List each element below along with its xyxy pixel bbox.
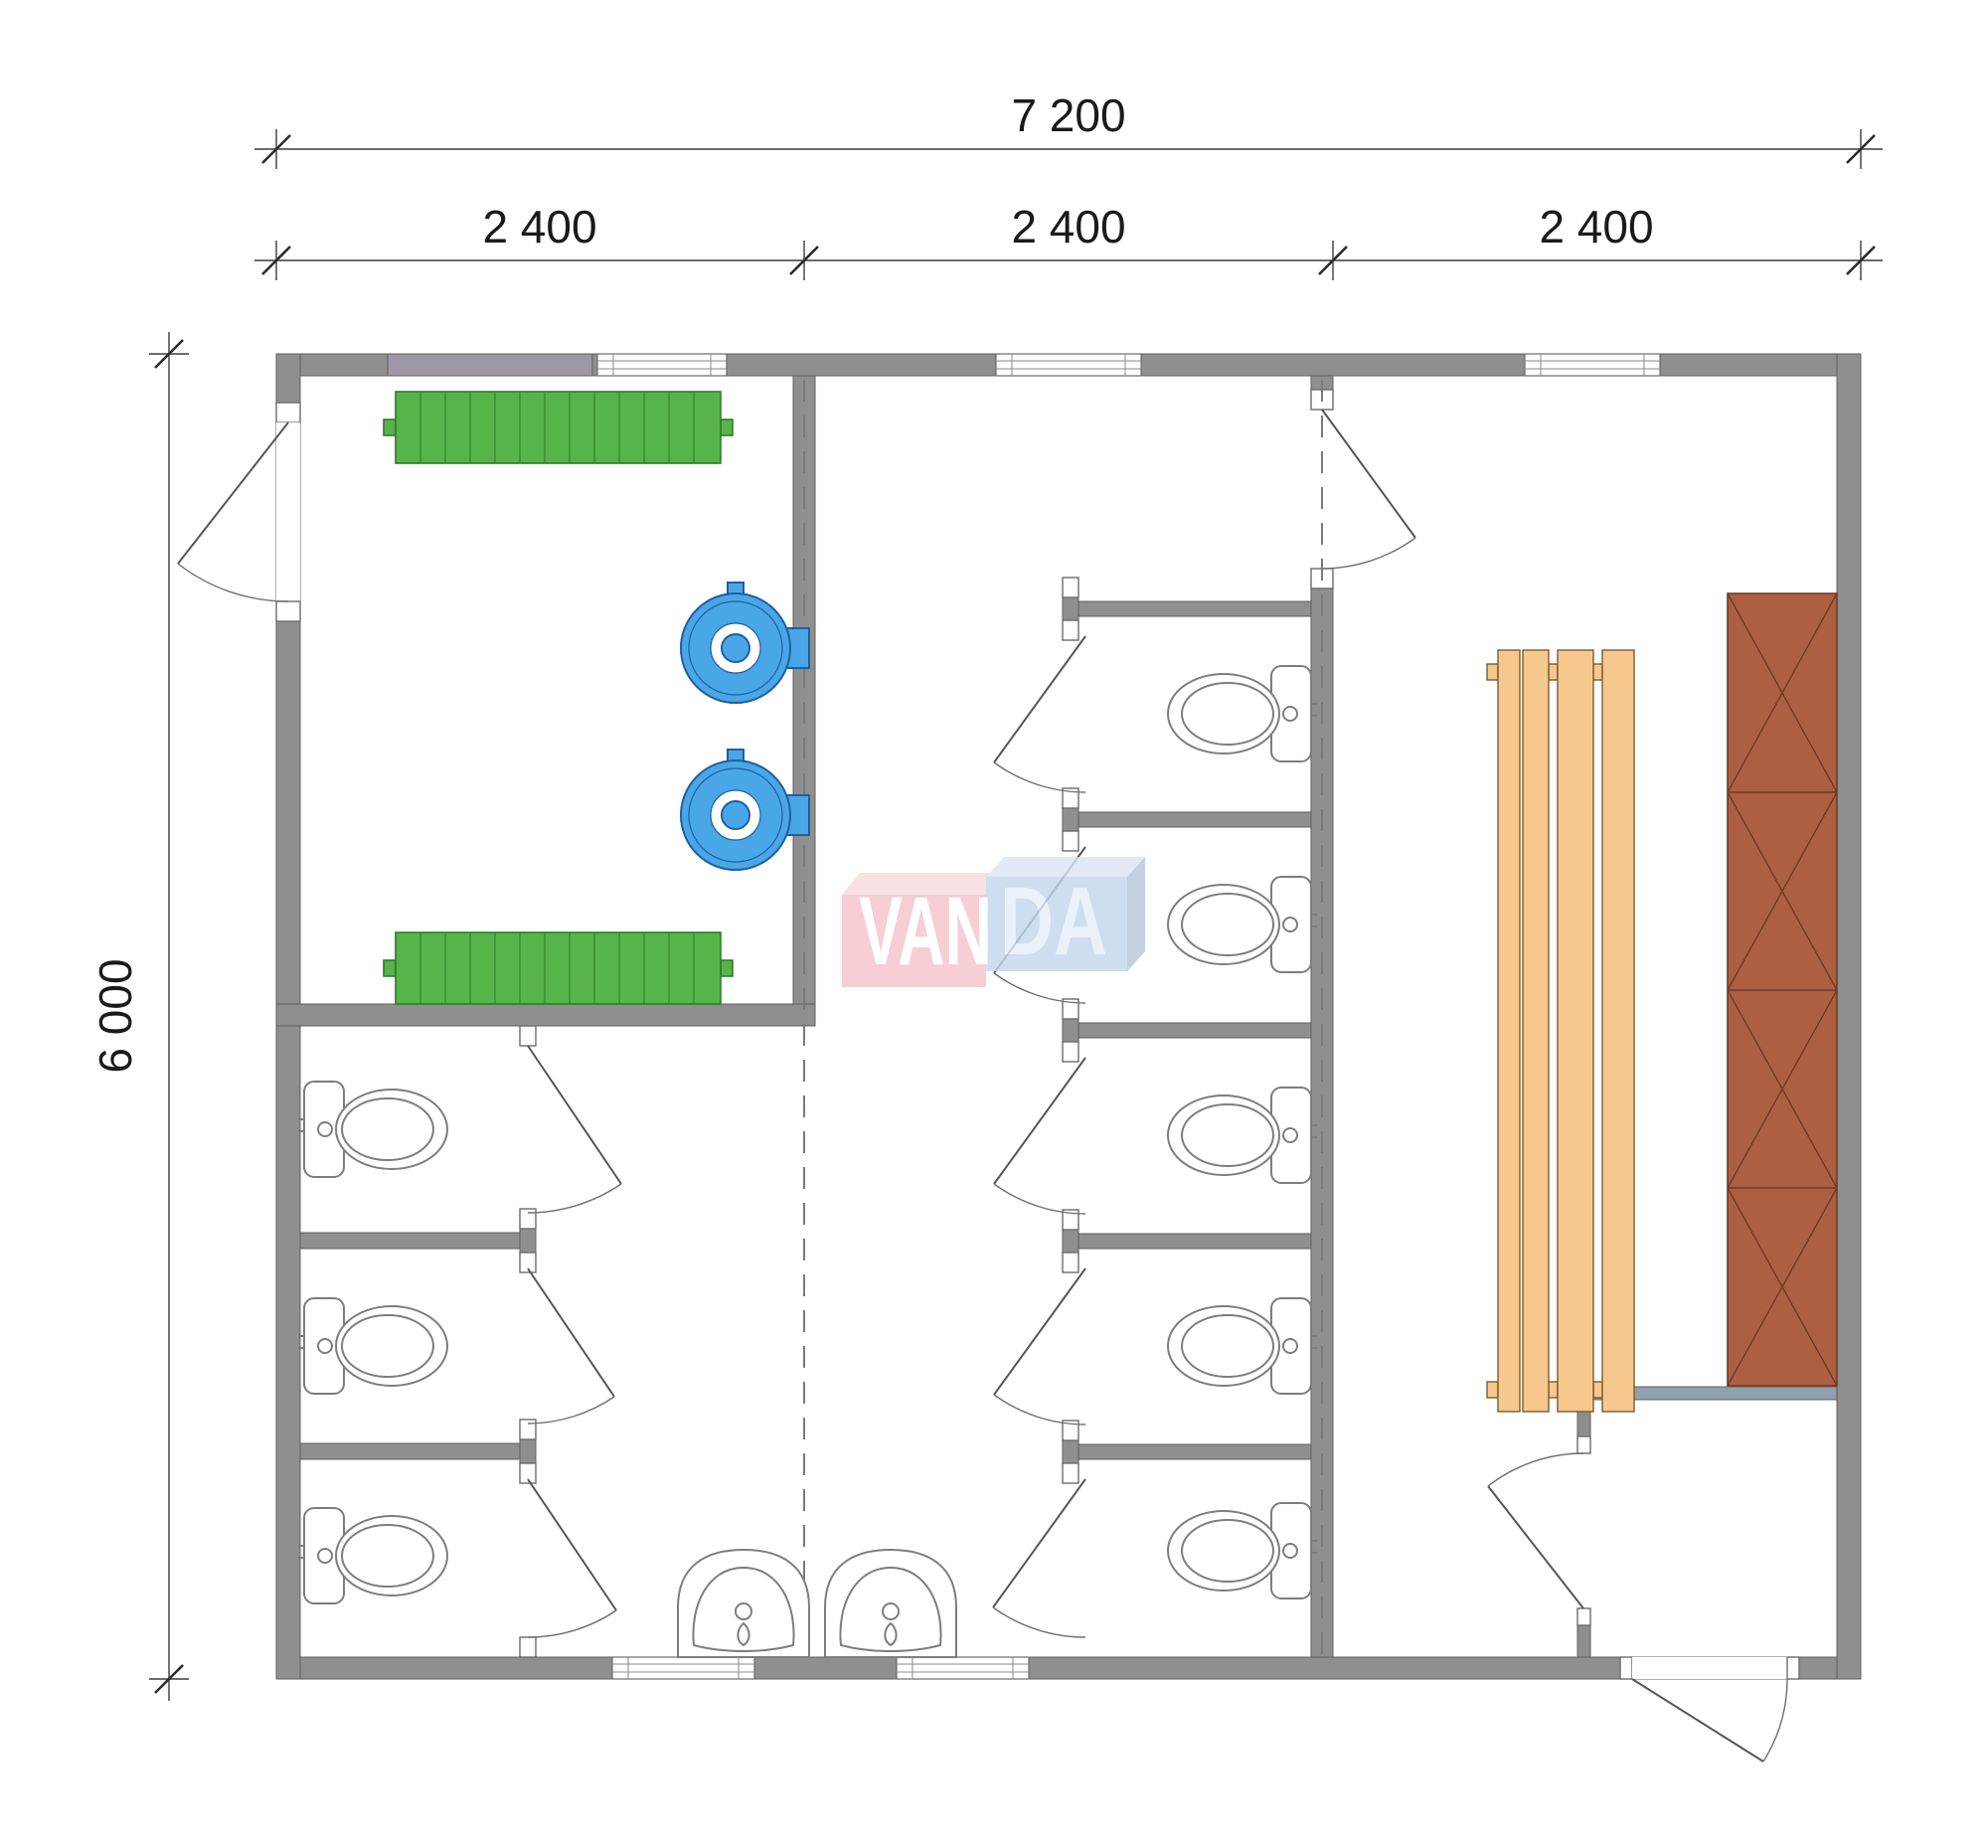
radiator-top xyxy=(384,392,733,463)
stall-door-left-1 xyxy=(528,1046,621,1213)
stall-partition-left-1 xyxy=(300,1233,520,1249)
window-bottom-2 xyxy=(897,1657,1029,1679)
stall-partition-center-3 xyxy=(1078,1023,1311,1038)
dim-module-1: 2 400 xyxy=(482,201,596,252)
stall-partition-left-2 xyxy=(300,1443,520,1459)
toilet-icon xyxy=(1168,1298,1317,1394)
vanda-logo: VAN DA xyxy=(842,857,1145,987)
sink-icon xyxy=(825,1550,956,1657)
toilet-icon xyxy=(298,1508,447,1603)
window-top-2 xyxy=(996,354,1141,376)
door-washroom-exterior xyxy=(178,403,300,621)
water-heater-1 xyxy=(681,583,809,703)
toilet-icon xyxy=(1168,1088,1317,1183)
wall-top-tinted-segment xyxy=(388,354,592,376)
stall-partition-center-2 xyxy=(1078,812,1311,827)
stall-jamb xyxy=(520,1637,536,1657)
wall-right xyxy=(1837,354,1861,1679)
stall-jamb xyxy=(1063,831,1078,851)
stall-partition-center-4 xyxy=(1078,1234,1311,1249)
stall-post-center xyxy=(1063,1230,1078,1253)
stall-post-left-2 xyxy=(520,1439,536,1463)
stall-jamb xyxy=(1063,1253,1078,1272)
stall-post-center xyxy=(1063,597,1078,620)
sink-icon xyxy=(678,1550,809,1657)
window-bottom-1 xyxy=(612,1657,754,1679)
stall-door-center-5 xyxy=(993,1479,1085,1637)
door-main-exterior xyxy=(1620,1657,1799,1762)
vestibule-door-jamb xyxy=(1577,1436,1590,1453)
window-top-3 xyxy=(1525,354,1660,376)
stall-partition-center-1 xyxy=(1078,601,1311,616)
stall-partition-center-5 xyxy=(1078,1444,1311,1459)
toilet-icon xyxy=(1168,1503,1317,1598)
toilet-icon xyxy=(298,1298,447,1394)
logo-text-da: DA xyxy=(1000,867,1107,975)
stall-post-center xyxy=(1063,808,1078,831)
stall-jamb xyxy=(520,1420,536,1439)
floor-plan-drawing: 7 200 2 400 2 400 2 400 6 000 xyxy=(0,0,1988,1848)
dim-module-3: 2 400 xyxy=(1539,201,1653,252)
floor-plan-page: 7 200 2 400 2 400 2 400 6 000 xyxy=(0,0,1988,1848)
stall-post-center xyxy=(1063,1019,1078,1042)
door-vestibule-interior xyxy=(1488,1453,1583,1608)
dim-total-width: 7 200 xyxy=(1011,89,1125,141)
dim-module-2: 2 400 xyxy=(1011,201,1125,252)
stall-post-left-1 xyxy=(520,1229,536,1253)
stall-jamb xyxy=(1063,620,1078,640)
locker-cabinet xyxy=(1728,593,1837,1386)
vestibule-door-jamb xyxy=(1577,1608,1590,1625)
water-heater-2 xyxy=(681,750,809,870)
stall-door-left-3 xyxy=(528,1479,616,1637)
stall-jamb xyxy=(520,1026,536,1046)
stall-jamb xyxy=(520,1209,536,1229)
stall-post-center xyxy=(1063,1440,1078,1463)
dim-total-height: 6 000 xyxy=(89,958,141,1073)
stall-jamb xyxy=(1063,1042,1078,1062)
stall-door-center-1 xyxy=(994,636,1085,792)
radiator-bottom xyxy=(384,932,733,1004)
stall-door-left-2 xyxy=(528,1268,614,1424)
toilet-icon xyxy=(1168,877,1317,972)
wall-washroom-bottom xyxy=(276,1004,815,1026)
logo-text-van: VAN xyxy=(859,877,992,985)
toilet-icon xyxy=(298,1082,447,1177)
door-center-to-changing xyxy=(1322,410,1415,569)
logo-blue-box-side xyxy=(1127,857,1145,971)
stall-jamb xyxy=(1063,578,1078,597)
stall-door-center-3 xyxy=(994,1058,1085,1214)
stall-door-center-4 xyxy=(994,1268,1085,1425)
stall-jamb xyxy=(1063,1463,1078,1483)
wall-vestibule-left-lower xyxy=(1577,1625,1590,1657)
window-top-1 xyxy=(597,354,727,376)
toilet-icon xyxy=(1168,666,1317,761)
bench xyxy=(1487,650,1634,1412)
